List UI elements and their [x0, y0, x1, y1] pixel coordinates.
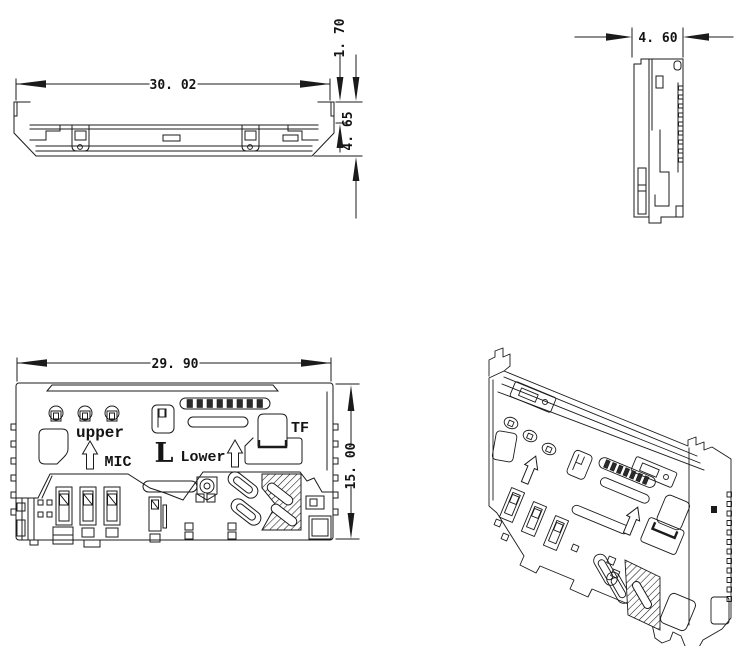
plan-sim-pad [39, 429, 68, 464]
plan-mid-slot [143, 481, 197, 492]
drawing-svg: 30. 02 1. 70 4. 65 [0, 0, 750, 646]
iso-contact-eyelets [502, 415, 557, 457]
lower-label: Lower [180, 449, 225, 466]
iso-spring-contacts [494, 488, 620, 579]
engineering-drawing-sheet: 30. 02 1. 70 4. 65 [0, 0, 750, 646]
iso-foot [659, 592, 697, 632]
front-overall-height-value: 4. 65 [341, 111, 356, 150]
front-hole-left [78, 145, 83, 150]
front-view: 30. 02 1. 70 4. 65 [14, 18, 362, 218]
iso-sim-pad [492, 430, 518, 462]
plan-contact-eyelets [49, 406, 119, 421]
iso-latch [566, 449, 594, 480]
side-depth-value: 4. 60 [638, 31, 677, 46]
front-width-dimension: 30. 02 [16, 78, 330, 100]
plan-left-ticks [11, 424, 16, 515]
plan-view: 29. 90 15. 00 [11, 357, 359, 547]
plan-mid-contact [149, 497, 167, 542]
plan-height-value: 15. 00 [344, 442, 359, 489]
iso-upper-arrow-icon [518, 453, 542, 485]
dim-arrow-right [300, 80, 330, 88]
lower-direction-arrow-icon [228, 440, 243, 467]
iso-silhouette [489, 371, 731, 646]
plan-diagonal-contact-1 [225, 469, 260, 501]
plan-pin-row [180, 398, 270, 409]
iso-lower-arrow-icon [620, 504, 644, 536]
tf-label: TF [291, 420, 309, 437]
mic-label: MIC [104, 454, 131, 471]
plan-spring-contacts [53, 487, 120, 544]
iso-mid-slot [571, 504, 630, 535]
plan-width-dimension: 29. 90 [17, 357, 331, 381]
plan-latch [152, 405, 174, 433]
side-view: 4. 60 [575, 28, 733, 223]
plan-part: upper MIC L Lower TF [11, 383, 338, 547]
front-width-value: 30. 02 [150, 78, 197, 93]
side-depth-dimension: 4. 60 [575, 28, 733, 57]
side-part-outline [634, 59, 683, 223]
isometric-view [489, 348, 732, 646]
upper-direction-arrow-icon [83, 441, 98, 469]
front-step-height-value: 1. 70 [333, 18, 348, 57]
front-height-dimensions: 1. 70 4. 65 [314, 18, 362, 218]
iso-card-slot [599, 476, 650, 504]
plan-height-dimension: 15. 00 [336, 384, 359, 539]
plan-lower-band [16, 469, 333, 547]
l-label: L [155, 438, 174, 469]
upper-label: upper [76, 424, 124, 442]
plan-top-slot [47, 385, 278, 391]
plan-width-value: 29. 90 [152, 357, 199, 372]
plan-card-slot [188, 417, 248, 427]
front-hole-right [248, 145, 253, 150]
dim-arrow-left [16, 80, 46, 88]
plan-right-ticks [333, 424, 338, 515]
iso-side-face [689, 448, 732, 625]
front-part-outline [14, 102, 334, 156]
iso-rail-clip-1 [510, 381, 557, 413]
